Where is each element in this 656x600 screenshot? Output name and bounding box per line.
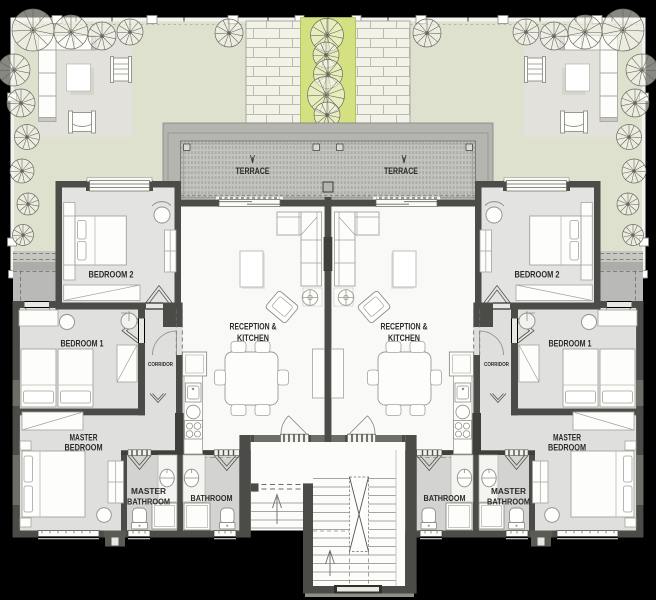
- svg-text:RECEPTION &: RECEPTION &: [230, 322, 277, 332]
- svg-text:MASTER: MASTER: [491, 486, 527, 496]
- svg-text:TERRACE: TERRACE: [236, 166, 270, 176]
- svg-text:BEDROOM: BEDROOM: [65, 443, 103, 453]
- svg-text:MASTER: MASTER: [131, 486, 167, 496]
- svg-text:BATHROOM: BATHROOM: [424, 493, 466, 503]
- svg-text:BEDROOM 1: BEDROOM 1: [61, 339, 104, 349]
- svg-text:BEDROOM 1: BEDROOM 1: [549, 339, 592, 349]
- svg-text:KITCHEN: KITCHEN: [237, 333, 269, 343]
- svg-text:CORRIDOR: CORRIDOR: [148, 362, 173, 368]
- svg-text:TERRACE: TERRACE: [384, 166, 418, 176]
- svg-text:MASTER: MASTER: [70, 433, 98, 443]
- svg-text:BEDROOM 2: BEDROOM 2: [89, 270, 134, 280]
- svg-text:MASTER: MASTER: [553, 433, 581, 443]
- svg-text:KITCHEN: KITCHEN: [388, 333, 420, 343]
- svg-text:BATHROOM: BATHROOM: [127, 497, 170, 507]
- svg-text:CORRIDOR: CORRIDOR: [484, 362, 509, 368]
- svg-text:RECEPTION &: RECEPTION &: [381, 322, 428, 332]
- svg-text:BEDROOM 2: BEDROOM 2: [515, 270, 560, 280]
- svg-text:BATHROOM: BATHROOM: [191, 493, 233, 503]
- svg-text:BEDROOM: BEDROOM: [548, 443, 586, 453]
- svg-text:BATHROOM: BATHROOM: [487, 497, 530, 507]
